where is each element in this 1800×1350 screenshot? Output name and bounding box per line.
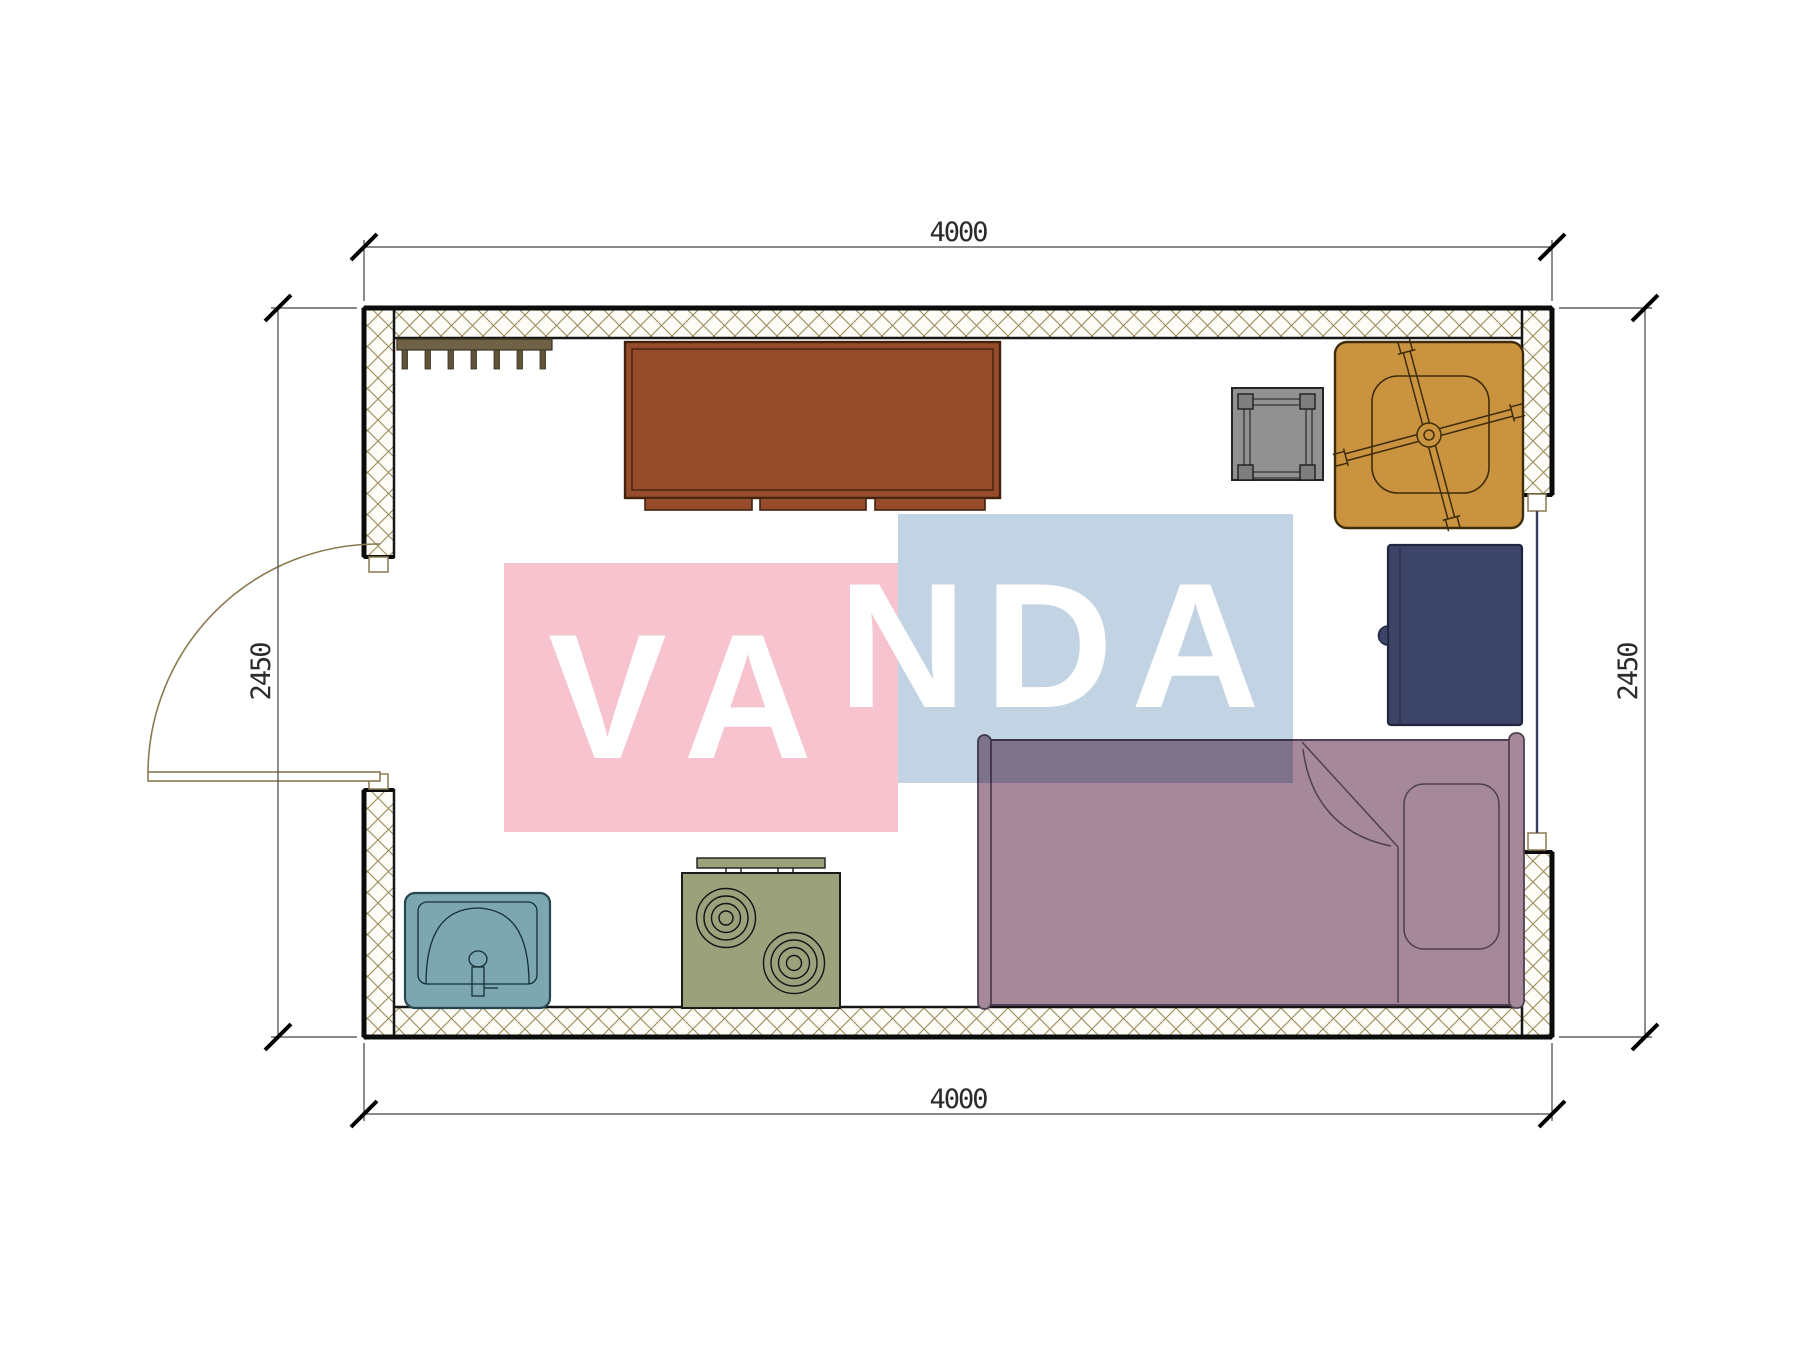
- bed-headboard: [1509, 733, 1524, 1008]
- watermark-text-right: NDA: [838, 546, 1278, 745]
- stove-icon: [682, 858, 840, 1008]
- floor-plan-canvas: VA NDA 4000 4000 2450 2450: [0, 0, 1800, 1350]
- dimension-top-label: 4000: [929, 217, 987, 248]
- window-jamb-top: [1528, 494, 1546, 511]
- office-chair-icon: [1309, 315, 1549, 555]
- sink-icon: [405, 893, 550, 1008]
- wall-right-upper: [1522, 308, 1552, 495]
- door-jamb-top: [369, 557, 388, 572]
- watermark-text-left: VA: [548, 597, 842, 796]
- dimension-bottom-label: 4000: [929, 1084, 987, 1115]
- floor-plan-drawing: VA NDA 4000 4000 2450 2450: [0, 0, 1800, 1350]
- wall-top: [364, 308, 1552, 338]
- wardrobe-icon: [1379, 545, 1522, 725]
- wall-right-lower: [1522, 852, 1552, 1037]
- stool-icon: [1232, 388, 1323, 480]
- bed-pillow: [1404, 784, 1499, 949]
- dimension-left: [265, 295, 357, 1050]
- door-leaf: [148, 772, 380, 781]
- wall-left-lower: [364, 790, 394, 1037]
- dimension-left-label: 2450: [246, 643, 277, 701]
- window-jamb-bottom: [1528, 833, 1546, 850]
- coat-rack-icon: [397, 339, 552, 369]
- wall-bottom: [364, 1007, 1552, 1037]
- wardrobe-handle: [1379, 626, 1388, 645]
- window-symbol: [1528, 494, 1546, 850]
- dimension-right-label: 2450: [1613, 643, 1644, 701]
- wall-left-upper: [364, 308, 394, 557]
- cabinet-desk-icon: [625, 342, 1000, 510]
